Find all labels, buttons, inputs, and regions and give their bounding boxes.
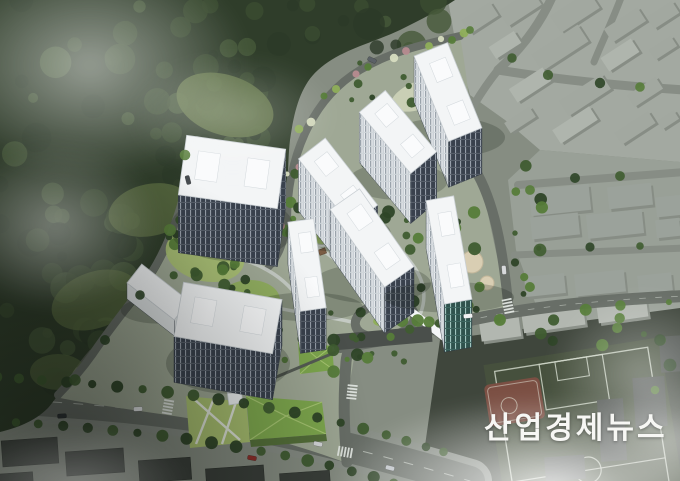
forest-canopy-blob — [0, 303, 14, 318]
tree — [406, 83, 412, 89]
tree — [570, 173, 580, 183]
tree — [239, 398, 249, 408]
forest-canopy-blob — [45, 206, 63, 224]
city-block — [655, 195, 680, 218]
tree — [636, 242, 644, 250]
tree — [58, 421, 68, 431]
tree — [357, 60, 362, 65]
tree — [352, 70, 359, 77]
tree — [217, 264, 228, 275]
tree — [14, 374, 24, 384]
tree — [521, 291, 527, 297]
tree — [413, 233, 424, 244]
tree — [387, 333, 395, 341]
tree — [83, 423, 93, 433]
forest-canopy-blob — [81, 95, 105, 119]
tree — [295, 125, 304, 134]
forest-canopy-blob — [305, 26, 320, 41]
tree — [180, 150, 191, 161]
tree — [615, 300, 625, 310]
tree — [664, 359, 677, 372]
tree — [438, 36, 444, 42]
dark-building — [65, 448, 125, 476]
tree — [364, 63, 371, 70]
city-block — [607, 183, 653, 209]
forest-canopy-blob — [2, 141, 27, 166]
forest-canopy-blob — [338, 15, 349, 26]
tree — [337, 419, 345, 427]
tree — [88, 380, 96, 388]
tree — [12, 418, 20, 426]
tree — [536, 201, 548, 213]
forest-canopy-blob — [353, 8, 385, 40]
roof-penthouse — [298, 232, 313, 254]
tree — [525, 282, 535, 292]
tree — [654, 334, 666, 346]
forest-canopy-blob — [427, 9, 452, 34]
forest-canopy-blob — [26, 228, 50, 252]
dark-building — [138, 457, 191, 481]
forest-canopy-blob — [370, 40, 384, 54]
forest-canopy-blob — [80, 189, 108, 217]
forest-canopy-blob — [113, 21, 138, 46]
tree — [230, 440, 243, 453]
tree — [612, 323, 622, 333]
tree — [494, 314, 506, 326]
forest-canopy-blob — [220, 39, 238, 57]
tree — [401, 74, 407, 80]
forest-canopy-blob — [105, 48, 123, 66]
tree — [347, 466, 357, 476]
tree — [511, 258, 519, 266]
tree — [156, 430, 168, 442]
tree — [135, 290, 145, 300]
tree — [402, 47, 410, 55]
forest-canopy-blob — [60, 340, 76, 356]
watermark-text: 산업경제뉴스 — [484, 403, 668, 447]
dark-building — [1, 437, 59, 467]
tree — [312, 412, 322, 422]
tree — [349, 333, 357, 341]
forest-canopy-blob — [144, 88, 171, 115]
tree — [280, 451, 290, 461]
tree — [512, 230, 517, 235]
tree — [327, 344, 339, 356]
tree — [349, 97, 354, 102]
forest-canopy-blob — [48, 222, 71, 245]
forest-canopy-blob — [246, 2, 264, 20]
tree — [466, 26, 474, 34]
tree — [596, 339, 608, 351]
tree — [595, 78, 605, 88]
tree — [615, 313, 625, 323]
forest-canopy-blob — [15, 75, 28, 88]
tree — [100, 335, 110, 345]
forest-canopy-blob — [57, 252, 67, 262]
tree — [332, 85, 340, 93]
tree — [401, 358, 407, 364]
forest-canopy-blob — [22, 123, 52, 153]
roof-penthouse — [240, 306, 266, 336]
forest-canopy-blob — [267, 32, 291, 56]
forest-canopy-blob — [150, 128, 162, 140]
tree — [666, 299, 672, 305]
tree — [439, 448, 448, 457]
tree — [191, 269, 203, 281]
tree — [468, 206, 480, 218]
car — [501, 265, 506, 274]
roof-penthouse — [244, 158, 270, 189]
forest-canopy-blob — [133, 0, 145, 12]
tree — [69, 374, 80, 385]
tree — [534, 244, 547, 257]
forest-canopy-blob — [28, 93, 38, 103]
forest-canopy-blob — [287, 0, 299, 11]
tree — [405, 325, 414, 334]
apartment-tower — [166, 282, 290, 400]
tree — [107, 425, 118, 436]
tower-facade-glass — [300, 308, 326, 354]
tower-facade-glass — [444, 299, 472, 352]
tree — [161, 386, 174, 399]
tree — [345, 357, 350, 362]
tree — [321, 93, 328, 100]
tree — [301, 454, 314, 467]
aerial-rendering-scene: 산업경제뉴스 — [0, 0, 680, 481]
tree — [205, 436, 218, 449]
tree — [164, 224, 176, 236]
city-block — [655, 218, 680, 238]
tree — [188, 390, 200, 402]
tree — [535, 328, 547, 340]
tree — [354, 79, 363, 88]
tree — [212, 393, 224, 405]
tree — [133, 429, 141, 437]
tree — [651, 386, 660, 395]
forest-canopy-blob — [228, 60, 241, 73]
tree — [181, 433, 193, 445]
tree — [362, 352, 374, 364]
forest-canopy-blob — [40, 47, 72, 79]
tree — [507, 53, 516, 62]
tree — [424, 316, 435, 327]
tree — [382, 430, 391, 439]
tree — [412, 314, 424, 326]
forest-canopy-blob — [162, 122, 182, 142]
tree — [525, 185, 535, 195]
forest-canopy-blob — [170, 17, 191, 38]
tree — [548, 314, 559, 325]
tree — [325, 461, 335, 471]
forest-canopy-blob — [122, 112, 135, 125]
tree — [289, 407, 301, 419]
tree — [401, 436, 411, 446]
city-block — [637, 272, 673, 293]
tree — [357, 423, 369, 435]
forest-canopy-blob — [155, 146, 176, 167]
tree — [520, 160, 532, 172]
tree — [241, 275, 251, 285]
tree — [615, 171, 625, 181]
tree — [422, 443, 431, 452]
tree — [390, 54, 398, 62]
roof-penthouse — [195, 151, 221, 182]
tree — [34, 420, 43, 429]
roof-penthouse — [305, 276, 320, 298]
forest-canopy-blob — [42, 183, 64, 205]
tree — [351, 348, 364, 361]
tree — [635, 82, 645, 92]
tree — [257, 447, 266, 456]
tree — [327, 365, 339, 377]
tree — [139, 385, 147, 393]
tree — [391, 350, 397, 356]
tree — [405, 244, 416, 255]
tree — [448, 36, 456, 44]
forest-canopy-blob — [238, 38, 256, 56]
tree — [111, 381, 123, 393]
tree — [641, 331, 647, 337]
tree — [548, 336, 558, 346]
forest-canopy-blob — [29, 327, 56, 354]
tree — [585, 242, 594, 251]
tree — [468, 242, 481, 255]
tree — [263, 402, 275, 414]
tree — [512, 187, 521, 196]
forest-canopy-blob — [156, 62, 173, 79]
tree — [37, 375, 47, 385]
tree — [543, 70, 553, 80]
tree — [170, 271, 178, 279]
roof-penthouse — [191, 297, 217, 327]
car — [57, 413, 66, 418]
tree — [520, 273, 528, 281]
forest-canopy-blob — [67, 37, 82, 52]
car — [463, 313, 472, 318]
dark-building — [544, 455, 586, 481]
tree — [307, 118, 316, 127]
tree — [580, 304, 592, 316]
tree — [403, 232, 411, 240]
car — [133, 407, 142, 412]
